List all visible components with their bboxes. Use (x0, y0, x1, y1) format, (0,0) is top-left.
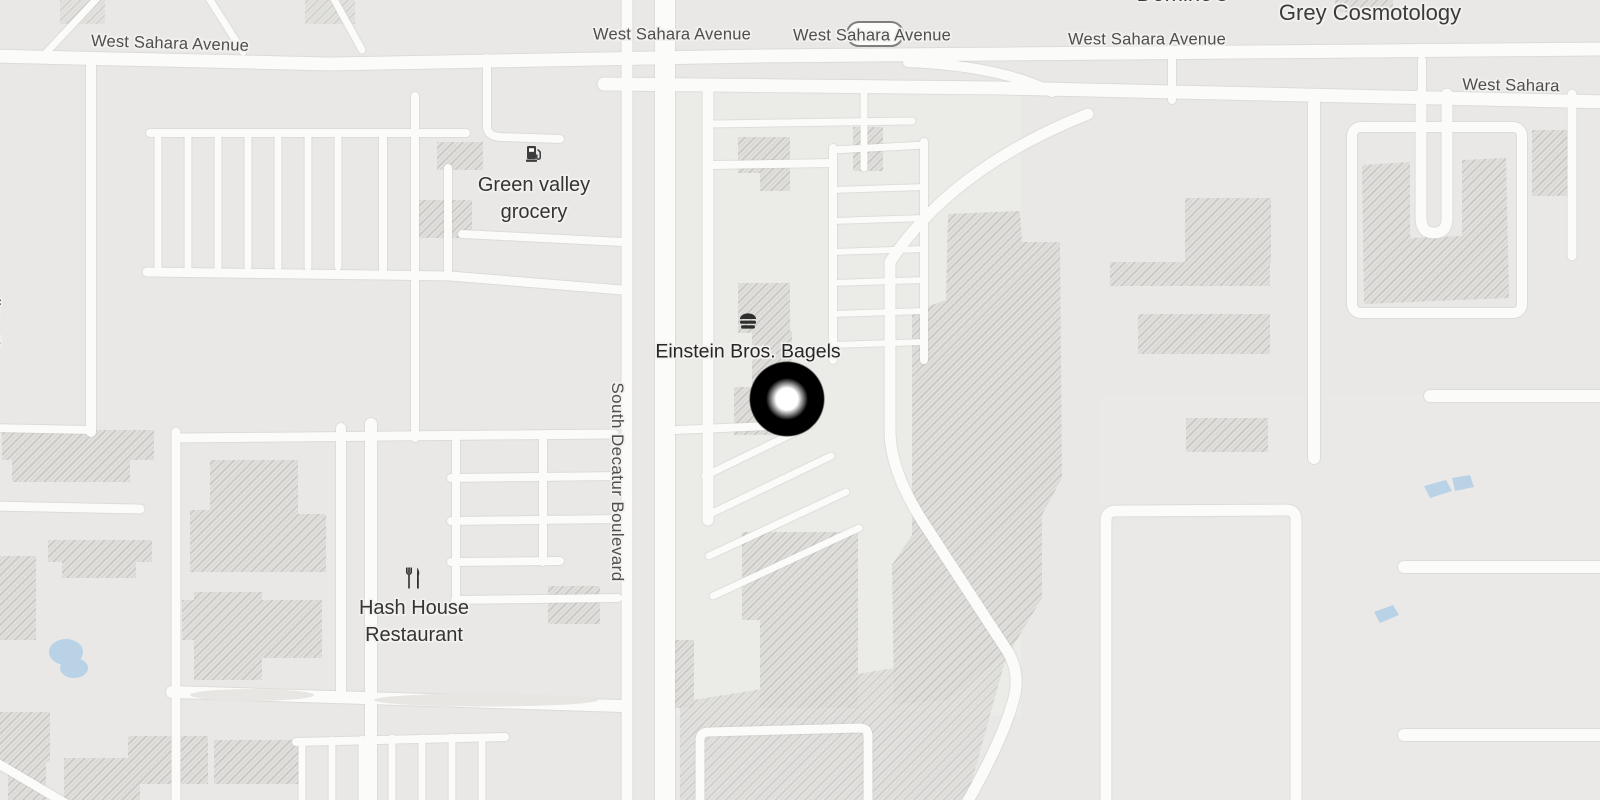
edge-cut-label: s (0, 328, 1, 355)
poi-label-dominos[interactable]: Domino's (1136, 0, 1227, 7)
street-label-west-sahara-right-edge: West Sahara (1462, 76, 1560, 97)
bagel-icon (736, 311, 760, 331)
map-canvas[interactable]: West Sahara Avenue West Sahara Avenue We… (0, 0, 1600, 800)
poi-label-line: Green valley (478, 172, 590, 199)
poi-label-hash-house-restaurant[interactable]: Hash House Restaurant (359, 595, 469, 649)
street-label-west-sahara-east: West Sahara Avenue (1068, 31, 1226, 50)
edge-cut-label: f (0, 296, 1, 323)
poi-label-line: Restaurant (359, 622, 469, 649)
poi-label-einstein-bros-bagels[interactable]: Einstein Bros. Bagels (655, 341, 840, 364)
gas-station-icon (524, 144, 544, 164)
street-label-west-sahara-shield: West Sahara Avenue (793, 27, 951, 46)
restaurant-icon (404, 566, 424, 590)
poi-label-line: grocery (478, 199, 590, 226)
street-label-west-sahara-center: West Sahara Avenue (593, 26, 751, 45)
street-label-south-decatur-boulevard: South Decatur Boulevard (607, 382, 627, 581)
poi-label-grey-cosmotology[interactable]: Grey Cosmotology (1279, 0, 1461, 26)
selected-location-marker[interactable] (749, 361, 825, 437)
poi-label-green-valley-grocery[interactable]: Green valley grocery (478, 172, 590, 226)
poi-label-line: Hash House (359, 595, 469, 622)
